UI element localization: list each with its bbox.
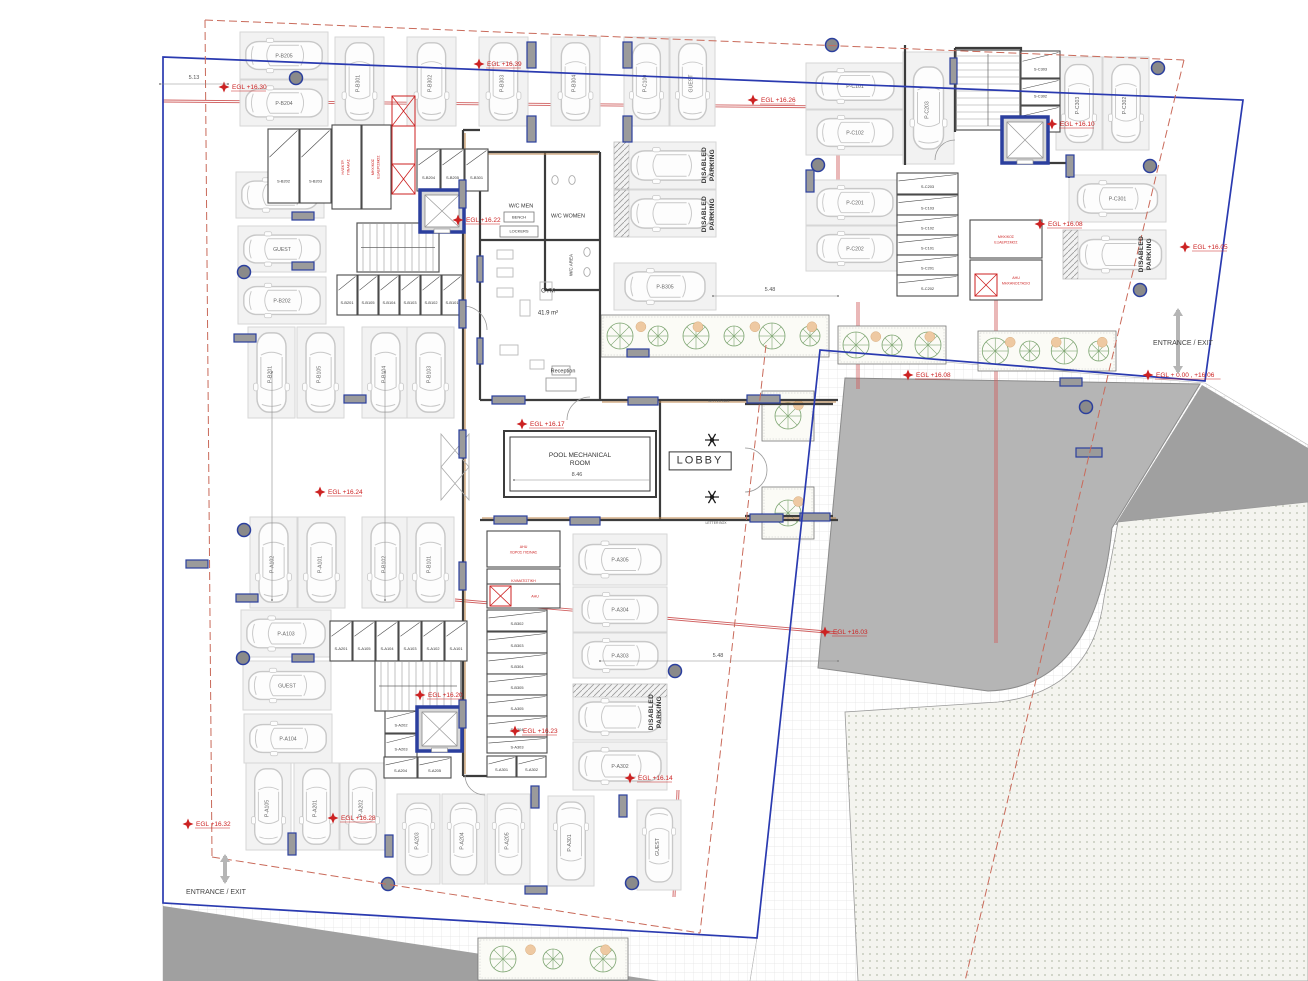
elevator xyxy=(420,190,464,233)
parking-stall-P-B304: P-B304 xyxy=(551,37,600,126)
parking-stall-P-B302: P-B302 xyxy=(407,37,456,126)
parking-stall-disabled xyxy=(614,190,716,237)
svg-text:S-A302: S-A302 xyxy=(525,767,538,772)
svg-text:S-B101: S-B101 xyxy=(446,300,459,305)
parking-stall-P-C102: P-C102 xyxy=(806,110,904,155)
parking-stall-P-A201: P-A201 xyxy=(294,763,339,850)
plant-icon xyxy=(705,434,719,446)
svg-text:EGL +16.30: EGL +16.30 xyxy=(232,84,267,91)
parking-stall-P-B101: P-B101 xyxy=(407,517,454,608)
svg-text:S-A204: S-A204 xyxy=(394,768,408,773)
mechanical-room: ΗΛΕΚΤΡ.ΠΙΝΑΚΑΣ xyxy=(332,125,361,209)
svg-text:5.48: 5.48 xyxy=(765,287,776,293)
svg-text:S-B105: S-B105 xyxy=(362,300,375,305)
storage-unit-S-B204: S-B204 xyxy=(417,149,440,191)
svg-text:S-A202: S-A202 xyxy=(395,723,408,728)
site-background-regions xyxy=(163,352,1308,981)
svg-text:EGL +16.05: EGL +16.05 xyxy=(1193,244,1228,251)
svg-text:S-C102: S-C102 xyxy=(921,225,934,230)
svg-text:ΜΗΧ/ΚΟΣ: ΜΗΧ/ΚΟΣ xyxy=(998,235,1015,239)
svg-text:S-B103: S-B103 xyxy=(404,300,417,305)
svg-text:P-A104: P-A104 xyxy=(279,737,296,743)
parking-stall-P-A304: P-A304 xyxy=(573,587,667,632)
storage-unit-S-A105: S-A105 xyxy=(353,621,375,661)
svg-text:S-A103: S-A103 xyxy=(404,646,417,651)
plant-icon xyxy=(705,491,719,503)
svg-text:S-A303: S-A303 xyxy=(511,745,524,750)
svg-text:P-B205: P-B205 xyxy=(275,54,292,60)
svg-text:AHU: AHU xyxy=(520,545,528,549)
svg-text:S-B301: S-B301 xyxy=(470,175,483,180)
svg-text:ΧΩΡΟΣ ΠΙΣΙΝΑΣ: ΧΩΡΟΣ ΠΙΣΙΝΑΣ xyxy=(510,550,538,554)
storage-unit-S-B203: S-B203 xyxy=(300,129,331,203)
svg-text:P-A101: P-A101 xyxy=(318,556,324,573)
storage-unit-S-B301: S-B301 xyxy=(465,149,488,191)
svg-text:LETTER BOX: LETTER BOX xyxy=(705,521,727,525)
parking-stall-P-A105: P-A105 xyxy=(246,763,291,850)
svg-text:S-B304: S-B304 xyxy=(511,664,525,669)
parking-stall-P-C301: P-C301 xyxy=(1069,175,1166,222)
svg-text:P-B101: P-B101 xyxy=(427,556,433,573)
storage-unit-S-C202: S-C202 xyxy=(897,275,958,296)
parking-stall-P-B103: P-B103 xyxy=(407,327,454,418)
elevation-marker: EGL +16.30 xyxy=(219,82,268,93)
svg-text:P-B305: P-B305 xyxy=(656,285,673,291)
svg-text:AHU: AHU xyxy=(1012,276,1020,280)
svg-text:P-B303: P-B303 xyxy=(500,75,506,92)
svg-text:GUEST: GUEST xyxy=(689,74,695,93)
svg-text:EGL +16.20: EGL +16.20 xyxy=(428,692,463,699)
storage-unit-S-B305: S-B305 xyxy=(487,674,547,695)
parking-stall-P-C302: P-C302 xyxy=(1103,57,1149,150)
svg-text:S-C202: S-C202 xyxy=(921,286,934,291)
parking-stall-P-A303: P-A303 xyxy=(573,633,667,678)
storage-unit-S-B304: S-B304 xyxy=(487,653,547,674)
svg-text:S-B102: S-B102 xyxy=(425,300,438,305)
parking-stall-P-A302: P-A302 xyxy=(573,742,667,790)
svg-text:P-A304: P-A304 xyxy=(611,608,628,614)
elevation-marker: EGL +16.24 xyxy=(315,487,364,498)
storage-unit-S-A205: S-A205 xyxy=(418,757,451,778)
svg-text:S-A105: S-A105 xyxy=(358,646,371,651)
svg-text:P-C301: P-C301 xyxy=(1109,197,1127,203)
parking-stall-P-C203: P-C203 xyxy=(903,52,954,164)
storage-unit-S-B303: S-B303 xyxy=(487,632,547,653)
svg-text:P-C100: P-C100 xyxy=(643,75,649,93)
svg-text:EGL +16.24: EGL +16.24 xyxy=(328,489,363,496)
svg-text:GUEST: GUEST xyxy=(655,837,661,856)
storage-unit-S-A302: S-A302 xyxy=(517,756,546,777)
svg-text:P-B104: P-B104 xyxy=(382,366,388,383)
svg-text:P-A303: P-A303 xyxy=(611,654,628,660)
floor-plan-canvas: P-B205P-B204P-B203GUESTP-B202P-B201P-B10… xyxy=(0,0,1308,981)
storage-unit-S-C201: S-C201 xyxy=(897,255,958,275)
storage-unit-S-A203: S-A203 xyxy=(385,734,417,757)
svg-text:S-A201: S-A201 xyxy=(335,646,348,651)
parking-stall-disabled xyxy=(573,684,667,740)
svg-text:S-C302: S-C302 xyxy=(1034,94,1047,99)
svg-text:ΕΞΑΕΡΙΣΜΟΣ: ΕΞΑΕΡΙΣΜΟΣ xyxy=(376,155,380,179)
elevation-marker: EGL +16.17 xyxy=(517,419,566,430)
storage-unit-S-C103: S-C103 xyxy=(897,195,958,215)
storage-unit-S-C303: S-C303 xyxy=(1021,51,1060,78)
elevation-marker: EGL +16.26 xyxy=(748,95,797,106)
svg-text:ΜΗΧΑΝΟΣΤΑΣΙΟ: ΜΗΧΑΝΟΣΤΑΣΙΟ xyxy=(1002,281,1031,285)
svg-text:P-A201: P-A201 xyxy=(313,800,319,817)
storage-unit-S-A201: S-A201 xyxy=(330,621,352,661)
svg-text:P-A301: P-A301 xyxy=(567,834,573,851)
svg-text:S-A102: S-A102 xyxy=(427,646,440,651)
storage-unit-S-A305: S-A305 xyxy=(487,695,547,716)
svg-text:P-B103: P-B103 xyxy=(427,366,433,383)
svg-text:S-C203: S-C203 xyxy=(921,184,934,189)
storage-unit-S-B105: S-B105 xyxy=(358,275,378,315)
svg-text:S-B302: S-B302 xyxy=(511,621,524,626)
svg-text:P-B102: P-B102 xyxy=(382,556,388,573)
svg-text:S-B205: S-B205 xyxy=(446,175,459,180)
storage-unit-S-A104: S-A104 xyxy=(376,621,398,661)
svg-text:P-B204: P-B204 xyxy=(275,101,292,107)
storage-unit-S-A103: S-A103 xyxy=(399,621,421,661)
svg-text:P-A305: P-A305 xyxy=(611,558,628,564)
parking-stall-P-A101: P-A101 xyxy=(298,517,345,608)
svg-text:S-C303: S-C303 xyxy=(1034,66,1047,71)
parking-stall-P-B303: P-B303 xyxy=(479,37,528,126)
svg-text:P-A203: P-A203 xyxy=(415,832,421,849)
svg-text:GUEST: GUEST xyxy=(278,684,297,690)
svg-text:P-A105: P-A105 xyxy=(265,800,271,817)
svg-text:EGL +16.08: EGL +16.08 xyxy=(916,372,951,379)
svg-text:P-B105: P-B105 xyxy=(317,366,323,383)
svg-text:P-C102: P-C102 xyxy=(846,131,864,137)
elevation-marker: EGL +16.05 xyxy=(1180,242,1229,253)
parking-stall-P-B205: P-B205 xyxy=(240,32,328,79)
svg-text:S-B202: S-B202 xyxy=(277,178,290,183)
parking-stall-GUEST: GUEST xyxy=(243,661,331,710)
svg-text:EGL +16.03: EGL +16.03 xyxy=(833,629,868,636)
svg-text:S-A104: S-A104 xyxy=(381,646,395,651)
parking-stall-P-A202: P-A202 xyxy=(340,763,385,850)
svg-text:S-B204: S-B204 xyxy=(422,175,436,180)
parking-stall-GUEST: GUEST xyxy=(637,800,681,890)
storage-unit-S-A303: S-A303 xyxy=(487,737,547,753)
parking-stall-P-B305: P-B305 xyxy=(614,263,716,310)
svg-text:EGL +16.26: EGL +16.26 xyxy=(761,97,796,104)
svg-text:S-B104: S-B104 xyxy=(383,300,397,305)
storage-unit-S-B103: S-B103 xyxy=(400,275,420,315)
svg-text:S-C101: S-C101 xyxy=(921,245,934,250)
parking-stall-disabled xyxy=(1063,230,1166,279)
parking-stall-P-A301: P-A301 xyxy=(548,796,594,886)
svg-text:S-A205: S-A205 xyxy=(428,768,441,773)
storage-unit-S-A204: S-A204 xyxy=(384,757,417,778)
svg-text:EGL +16.28: EGL +16.28 xyxy=(341,815,376,822)
mechanical-room: ΜΗΧ/ΚΟΣΕΞΑΕΡΙΣΜΟΣ xyxy=(362,125,391,209)
svg-text:ΠΙΝΑΚΑΣ: ΠΙΝΑΚΑΣ xyxy=(346,158,350,174)
svg-text:ΕΞΑΕΡΙΣΜΟΣ: ΕΞΑΕΡΙΣΜΟΣ xyxy=(994,240,1018,244)
svg-text:S-A203: S-A203 xyxy=(395,747,408,752)
svg-text:S-A101: S-A101 xyxy=(450,646,463,651)
svg-text:EGL +16.32: EGL +16.32 xyxy=(196,821,231,828)
parking-stall-P-B202: P-B202 xyxy=(238,277,326,324)
svg-text:P-C303: P-C303 xyxy=(1075,97,1081,115)
svg-text:P-C302: P-C302 xyxy=(1122,97,1128,115)
parking-stall-P-C201: P-C201 xyxy=(806,180,904,225)
parking-stall-P-B301: P-B301 xyxy=(335,37,384,126)
staircase xyxy=(375,661,461,711)
parking-stall-P-C303: P-C303 xyxy=(1056,57,1102,150)
parking-stall-disabled xyxy=(614,142,716,189)
svg-text:S-B305: S-B305 xyxy=(511,685,524,690)
parking-stall-P-A305: P-A305 xyxy=(573,534,667,585)
svg-text:S-B201: S-B201 xyxy=(341,300,354,305)
storage-unit-S-A301: S-A301 xyxy=(487,756,516,777)
mechanical-room: AHU xyxy=(487,584,560,608)
svg-text:EGL +16.23: EGL +16.23 xyxy=(523,728,558,735)
svg-text:P-B301: P-B301 xyxy=(356,75,362,92)
svg-text:EGL +16.10: EGL +16.10 xyxy=(1060,121,1095,128)
parking-stall-P-A104: P-A104 xyxy=(244,714,332,763)
svg-text:S-C201: S-C201 xyxy=(921,265,934,270)
storage-unit-S-B201: S-B201 xyxy=(337,275,357,315)
svg-text:AHU: AHU xyxy=(531,595,539,599)
elevator xyxy=(417,707,462,752)
svg-text:P-A204: P-A204 xyxy=(460,832,466,849)
parking-stall-P-A204: P-A204 xyxy=(442,794,485,884)
svg-text:P-B304: P-B304 xyxy=(572,75,578,92)
storage-unit-S-A101: S-A101 xyxy=(445,621,467,661)
parking-stall-GUEST: GUEST xyxy=(670,37,715,126)
svg-text:EGL +16.39: EGL +16.39 xyxy=(487,61,522,68)
svg-text:5.48: 5.48 xyxy=(713,653,724,659)
storage-unit-S-B102: S-B102 xyxy=(421,275,441,315)
elevation-marker: EGL +16.32 xyxy=(183,819,232,830)
svg-text:8.46: 8.46 xyxy=(572,472,583,478)
parking-stall-P-C202: P-C202 xyxy=(806,226,904,271)
parking-stall-P-A205: P-A205 xyxy=(487,794,530,884)
parking-stall-P-B105: P-B105 xyxy=(297,327,344,418)
svg-text:EGL +16.14: EGL +16.14 xyxy=(638,775,673,782)
mechanical-room: ΜΗΧ/ΚΟΣΕΞΑΕΡΙΣΜΟΣ xyxy=(970,220,1042,258)
svg-text:ΗΛΕΚΤΡ.: ΗΛΕΚΤΡ. xyxy=(341,159,345,174)
svg-text:P-A302: P-A302 xyxy=(611,764,628,770)
svg-text:S-B203: S-B203 xyxy=(309,178,322,183)
parking-stall-P-A103: P-A103 xyxy=(241,610,331,657)
svg-text:P-C201: P-C201 xyxy=(846,201,864,207)
svg-text:S-C103: S-C103 xyxy=(921,205,934,210)
svg-text:P-A205: P-A205 xyxy=(505,832,511,849)
svg-text:ΜΗΧ/ΚΟΣ: ΜΗΧ/ΚΟΣ xyxy=(371,158,375,175)
svg-text:ΚΛΙΜΑΤΙΣΤΙΚΗ: ΚΛΙΜΑΤΙΣΤΙΚΗ xyxy=(511,579,536,583)
svg-text:EGL +16.08: EGL +16.08 xyxy=(1048,221,1083,228)
storage-unit-S-C101: S-C101 xyxy=(897,235,958,255)
mechanical-room: AHUΧΩΡΟΣ ΠΙΣΙΝΑΣ xyxy=(487,531,560,567)
svg-text:S-B303: S-B303 xyxy=(511,643,524,648)
svg-text:5.13: 5.13 xyxy=(189,75,200,81)
storage-unit-S-A202: S-A202 xyxy=(385,710,417,733)
svg-text:EGL +16.17: EGL +16.17 xyxy=(530,421,565,428)
svg-text:P-C203: P-C203 xyxy=(925,101,931,119)
storage-unit-S-C203: S-C203 xyxy=(897,173,958,194)
svg-text:P-A103: P-A103 xyxy=(277,632,294,638)
svg-text:P-C202: P-C202 xyxy=(846,247,864,253)
storage-unit-S-A102: S-A102 xyxy=(422,621,444,661)
svg-text:LETTER BOX: LETTER BOX xyxy=(708,399,730,403)
svg-text:EGL + 0.00 , +16.06: EGL + 0.00 , +16.06 xyxy=(1156,372,1215,379)
storage-unit-S-B302: S-B302 xyxy=(487,610,547,631)
parking-stall-P-B102: P-B102 xyxy=(362,517,409,608)
elevator xyxy=(1002,117,1048,164)
floor-plan-drawing: P-B205P-B204P-B203GUESTP-B202P-B201P-B10… xyxy=(0,0,1308,981)
svg-text:P-B302: P-B302 xyxy=(428,75,434,92)
svg-text:S-A305: S-A305 xyxy=(511,706,524,711)
svg-text:P-B201: P-B201 xyxy=(268,366,274,383)
storage-unit-S-C102: S-C102 xyxy=(897,215,958,235)
svg-text:P-B202: P-B202 xyxy=(273,299,290,305)
parking-stall-P-A203: P-A203 xyxy=(397,794,440,884)
svg-text:P-A102: P-A102 xyxy=(270,556,276,573)
storage-unit-S-B104: S-B104 xyxy=(379,275,399,315)
svg-text:EGL +16.22: EGL +16.22 xyxy=(466,217,501,224)
svg-text:S-A301: S-A301 xyxy=(495,767,508,772)
svg-text:GUEST: GUEST xyxy=(273,247,292,253)
storage-unit-S-B202: S-B202 xyxy=(268,129,299,203)
